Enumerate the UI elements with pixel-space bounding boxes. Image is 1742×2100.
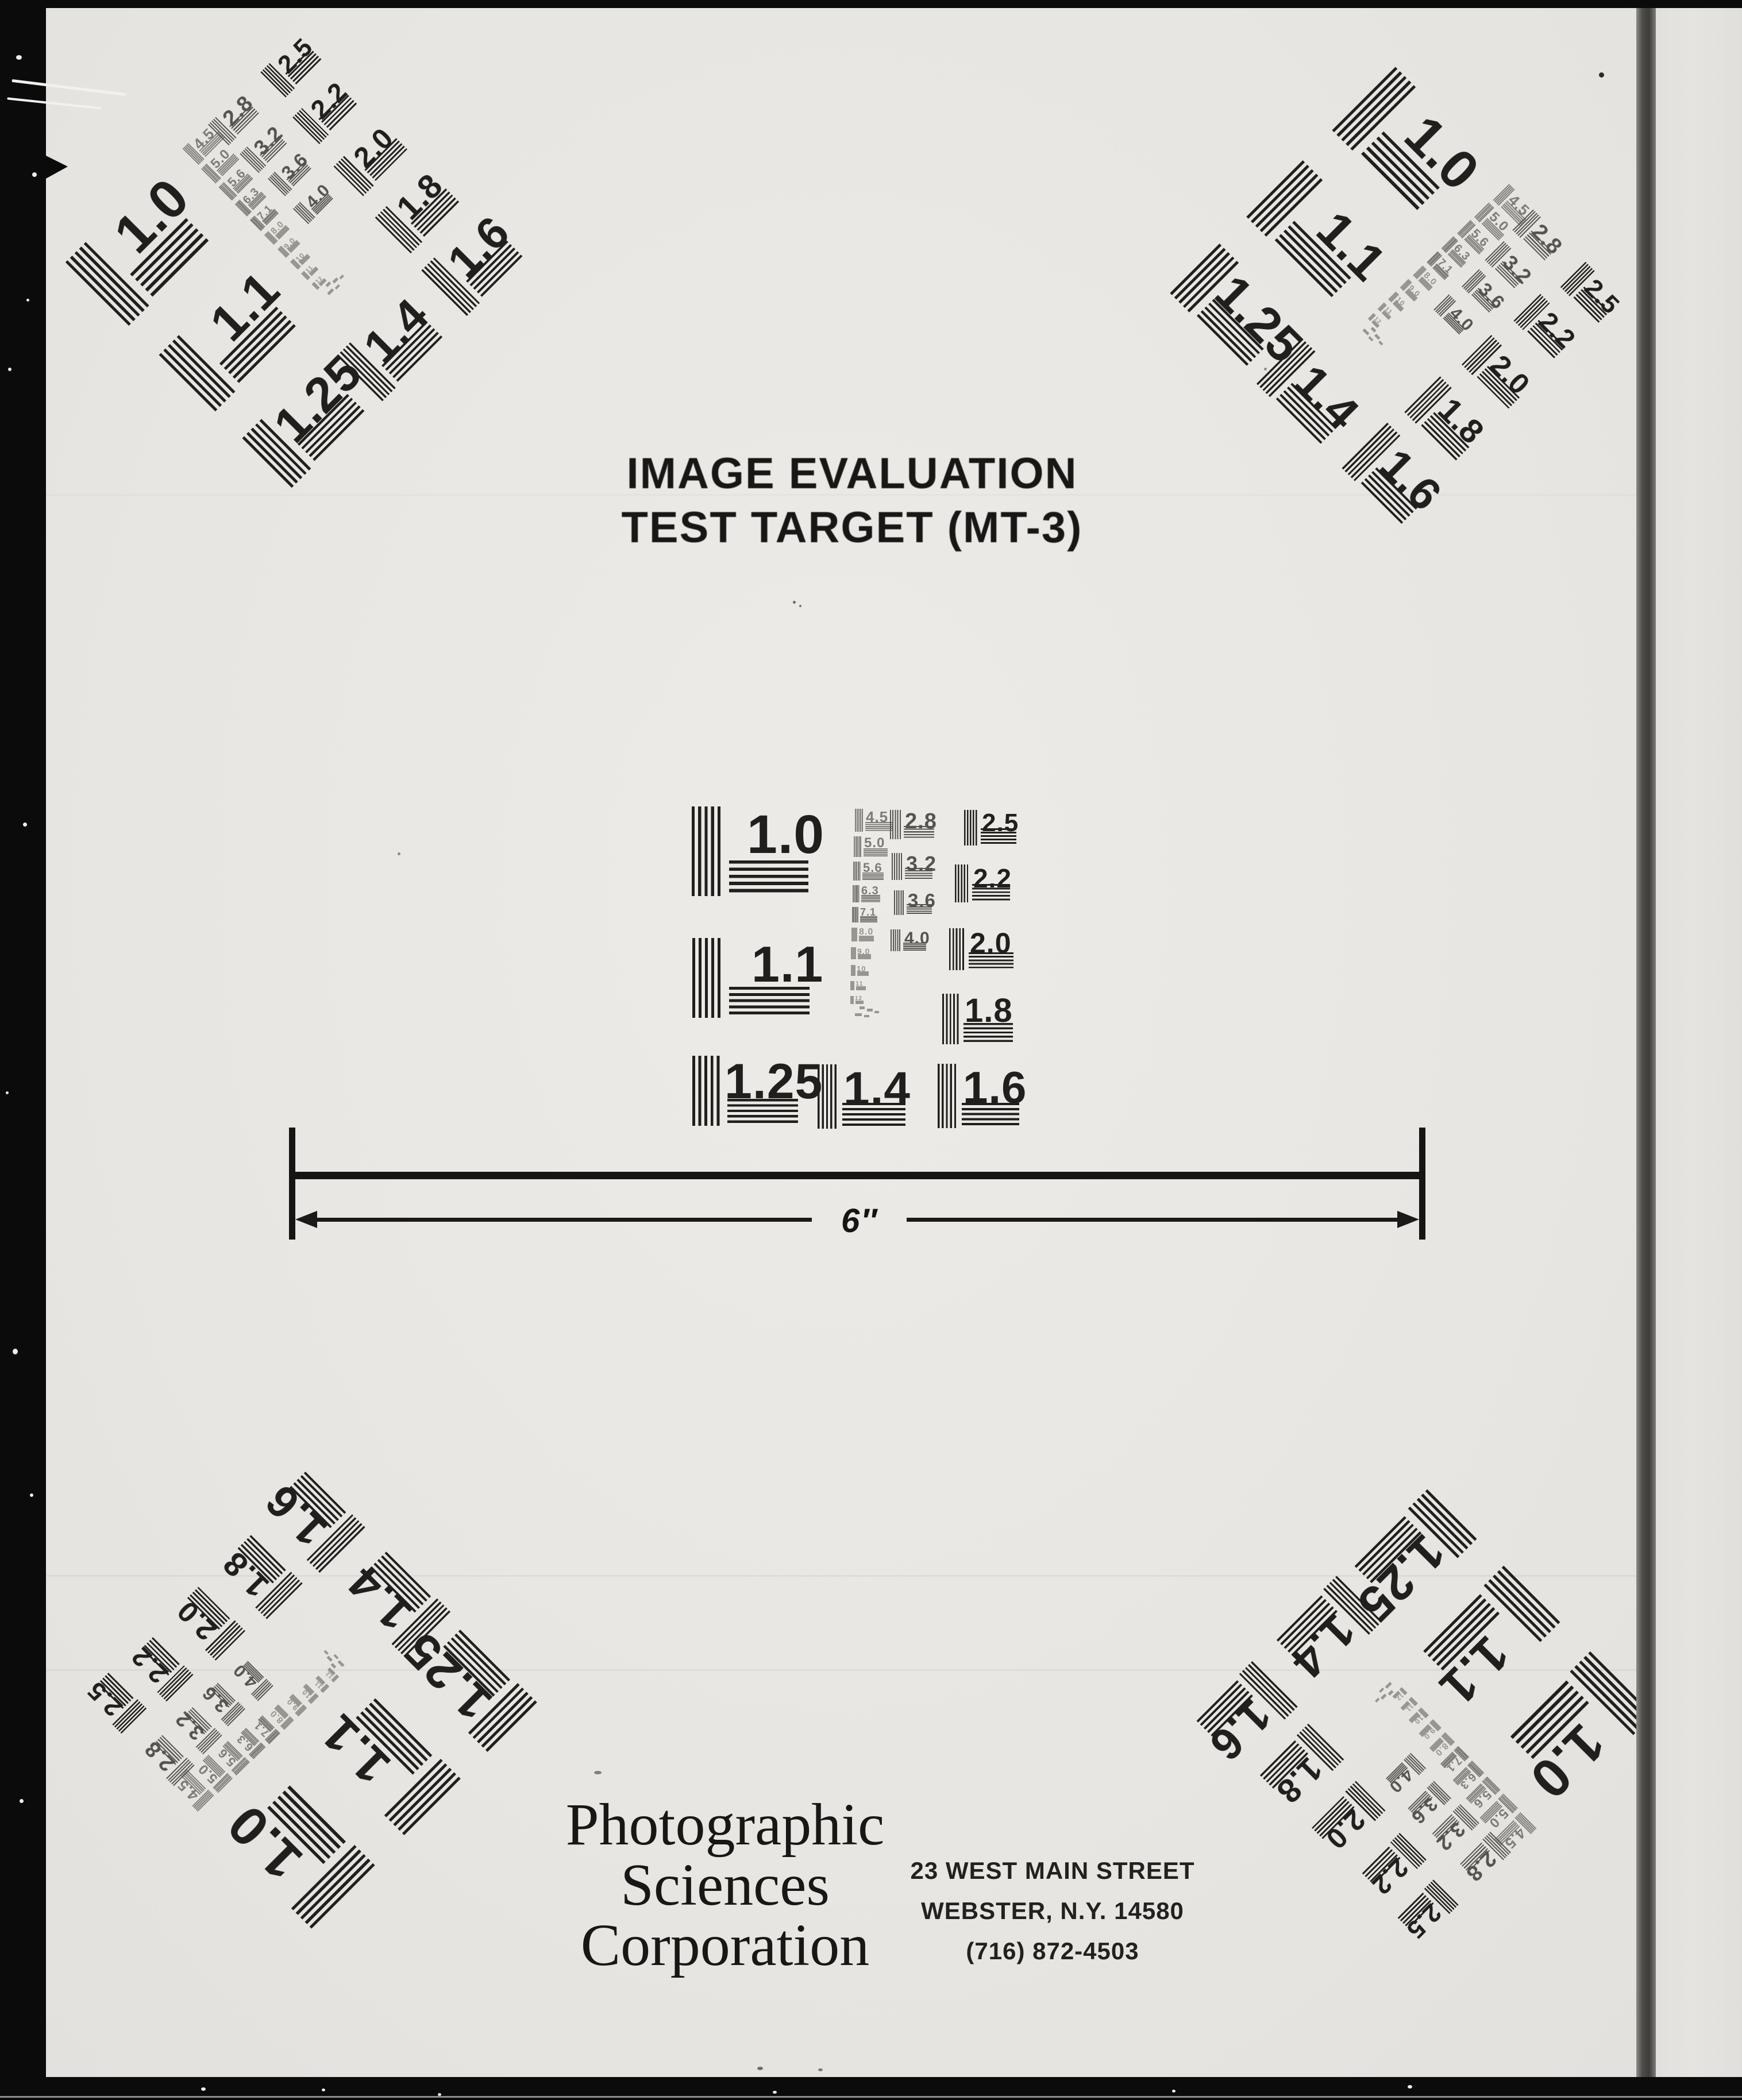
scan-edge-bottom-line (0, 2096, 1742, 2098)
unresolved-mark (1368, 336, 1373, 341)
vertical-bars (964, 810, 978, 846)
resolution-group-1-25: 1.25 (692, 1056, 826, 1126)
unresolved-mark (323, 1650, 328, 1655)
resolution-group-label: 1.0 (747, 808, 824, 862)
resolution-group-12: 12 (850, 996, 870, 1004)
vertical-bars (955, 864, 970, 902)
resolution-group-1-1: 1.1 (692, 938, 830, 1018)
horizontal-bars (857, 971, 869, 976)
horizontal-bars (842, 1103, 905, 1129)
unresolved-mark (332, 277, 338, 284)
horizontal-bars (861, 895, 880, 902)
film-speck (6, 1091, 9, 1094)
horizontal-bars (972, 884, 1010, 902)
resolution-group-11: 11 (850, 981, 872, 990)
vertical-bars (853, 862, 861, 881)
vertical-bars (938, 1064, 958, 1128)
scale-bar-rule (289, 1172, 1425, 1179)
scan-edge-left (0, 0, 46, 2100)
unresolved-mark (333, 1654, 338, 1659)
title-line-2: TEST TARGET (MT-3) (622, 501, 1083, 555)
unresolved-mark (335, 284, 340, 289)
horizontal-bars (729, 860, 808, 896)
vertical-bars (692, 1056, 723, 1126)
resolution-group-2-8: 2.8 (890, 810, 950, 839)
unresolved-mark (860, 1006, 865, 1009)
test-pattern-center: 1.01.11.251.41.64.55.05.66.37.18.09.0101… (689, 804, 1011, 1129)
resolution-group-9-0: 9.0 (851, 947, 877, 959)
vertical-bars (942, 994, 961, 1044)
film-speck (201, 2087, 206, 2091)
unresolved-mark (1371, 327, 1377, 333)
horizontal-bars (727, 1099, 798, 1126)
title-line-1: IMAGE EVALUATION (622, 447, 1083, 501)
vertical-bars (949, 928, 966, 970)
resolution-group-1-4: 1.4 (818, 1064, 938, 1129)
resolution-group-3-6: 3.6 (894, 890, 947, 915)
address-line-1: 23 WEST MAIN STREET (910, 1851, 1194, 1891)
company-name: Photographic Sciences Corporation (566, 1794, 885, 1975)
adjacent-page-edge (1656, 7, 1742, 2078)
unresolved-mark (1385, 1682, 1392, 1689)
unresolved-mark (1375, 1698, 1379, 1703)
horizontal-bars (904, 826, 934, 839)
vertical-bars (853, 885, 860, 902)
film-speck (20, 1799, 24, 1803)
resolution-group-3-2: 3.2 (892, 853, 949, 880)
arrow-left-icon (295, 1211, 317, 1228)
vertical-bars (850, 996, 854, 1004)
unresolved-mark (327, 288, 334, 295)
film-speck (8, 368, 11, 371)
film-edge-band (1636, 7, 1656, 2078)
vertical-bars (852, 907, 858, 922)
horizontal-bars (729, 987, 810, 1018)
paper-speck (799, 605, 801, 607)
company-line-2: Sciences (566, 1855, 885, 1915)
vertical-bars (854, 836, 862, 857)
scale-arrow-line-right (907, 1218, 1398, 1222)
unresolved-mark (867, 1009, 873, 1012)
resolution-group-10: 10 (851, 965, 875, 976)
horizontal-bars (856, 986, 866, 990)
horizontal-bars (905, 868, 932, 880)
film-speck (16, 55, 22, 60)
unresolved-mark (855, 1013, 862, 1016)
horizontal-bars (862, 873, 884, 881)
unresolved-mark (326, 1655, 333, 1662)
resolution-group-5-6: 5.6 (853, 862, 891, 881)
film-speck (322, 2089, 325, 2091)
film-speck (23, 823, 27, 827)
film-speck (1172, 2090, 1176, 2093)
paper-speck (757, 2067, 763, 2070)
film-speck (13, 1349, 18, 1354)
vertical-bars (850, 981, 854, 990)
address-line-3: (716) 872-4503 (910, 1931, 1194, 1971)
resolution-group-12: 12 (311, 271, 331, 290)
company-line-1: Photographic (566, 1794, 885, 1855)
film-speck (30, 1493, 33, 1497)
unresolved-mark (330, 1663, 336, 1669)
film-speck (438, 2093, 441, 2096)
vertical-bars (892, 853, 903, 880)
paper-speck (594, 1771, 602, 1774)
horizontal-bars (859, 936, 874, 941)
horizontal-bars (864, 848, 888, 857)
scale-arrow-line-left (315, 1218, 812, 1222)
resolution-group-6-3: 6.3 (853, 885, 887, 902)
paper-speck (793, 601, 796, 604)
address-line-2: WEBSTER, N.Y. 14580 (910, 1891, 1194, 1931)
resolution-group-4-0: 4.0 (891, 929, 941, 951)
unresolved-mark (1374, 334, 1381, 340)
scale-bar-left-end (289, 1128, 295, 1240)
resolution-group-4-0: 4.0 (293, 173, 344, 224)
unresolved-mark (864, 1015, 869, 1017)
vertical-bars (692, 938, 724, 1018)
film-speck (1408, 2085, 1412, 2089)
vertical-bars (851, 928, 857, 941)
unresolved-mark (874, 1011, 879, 1013)
unresolved-mark (1381, 1693, 1387, 1700)
unresolved-mark (339, 275, 344, 279)
resolution-group-8-0: 8.0 (851, 928, 880, 941)
scale-bar-right-end (1419, 1128, 1425, 1240)
unresolved-mark (1362, 329, 1369, 335)
horizontal-bars (964, 1023, 1013, 1044)
horizontal-bars (860, 916, 877, 922)
vertical-bars (851, 965, 855, 976)
resolution-group-5-0: 5.0 (854, 836, 894, 857)
paper-speck (818, 2068, 823, 2071)
film-speck (26, 299, 29, 302)
resolution-group-1-6: 1.6 (938, 1064, 1053, 1128)
film-speck (32, 172, 37, 177)
resolution-group-2-5: 2.5 (964, 810, 1034, 846)
arrow-right-icon (1397, 1211, 1419, 1228)
vertical-bars (890, 810, 902, 839)
unresolved-mark (1388, 1690, 1394, 1696)
unresolved-mark (325, 281, 331, 287)
horizontal-bars (907, 904, 932, 915)
vertical-bars (818, 1064, 839, 1129)
horizontal-bars (962, 1103, 1019, 1128)
page-title: IMAGE EVALUATION TEST TARGET (MT-3) (622, 447, 1083, 555)
horizontal-bars (969, 952, 1013, 970)
vertical-bars (692, 806, 724, 896)
resolution-group-7-1: 7.1 (852, 907, 884, 922)
vertical-bars (891, 929, 901, 951)
paper-speck (398, 852, 400, 855)
resolution-group-1-8: 1.8 (942, 994, 1032, 1044)
vertical-bars (855, 809, 864, 832)
vertical-bars (894, 890, 905, 915)
film-speck (773, 2091, 777, 2094)
unresolved-mark (337, 1660, 344, 1667)
resolution-group-1-0: 1.0 (692, 806, 838, 896)
resolution-group-2-2: 2.2 (955, 864, 1027, 902)
horizontal-bars (981, 828, 1016, 846)
company-address: 23 WEST MAIN STREET WEBSTER, N.Y. 14580 … (910, 1851, 1194, 1971)
film-notch (45, 155, 68, 179)
resolution-group-2-0: 2.0 (949, 928, 1028, 970)
unresolved-mark (1379, 1688, 1384, 1693)
horizontal-bars (858, 954, 871, 959)
unresolved-mark (1378, 341, 1383, 345)
resolution-group-label: 1.1 (751, 939, 823, 990)
scan-edge-top (0, 0, 1742, 8)
horizontal-bars (903, 943, 926, 951)
paper-speck (1599, 72, 1604, 78)
horizontal-bars (855, 1001, 864, 1004)
scale-label: 6″ (841, 1202, 878, 1240)
horizontal-bars (865, 822, 892, 832)
vertical-bars (851, 947, 856, 959)
company-line-3: Corporation (566, 1915, 885, 1975)
